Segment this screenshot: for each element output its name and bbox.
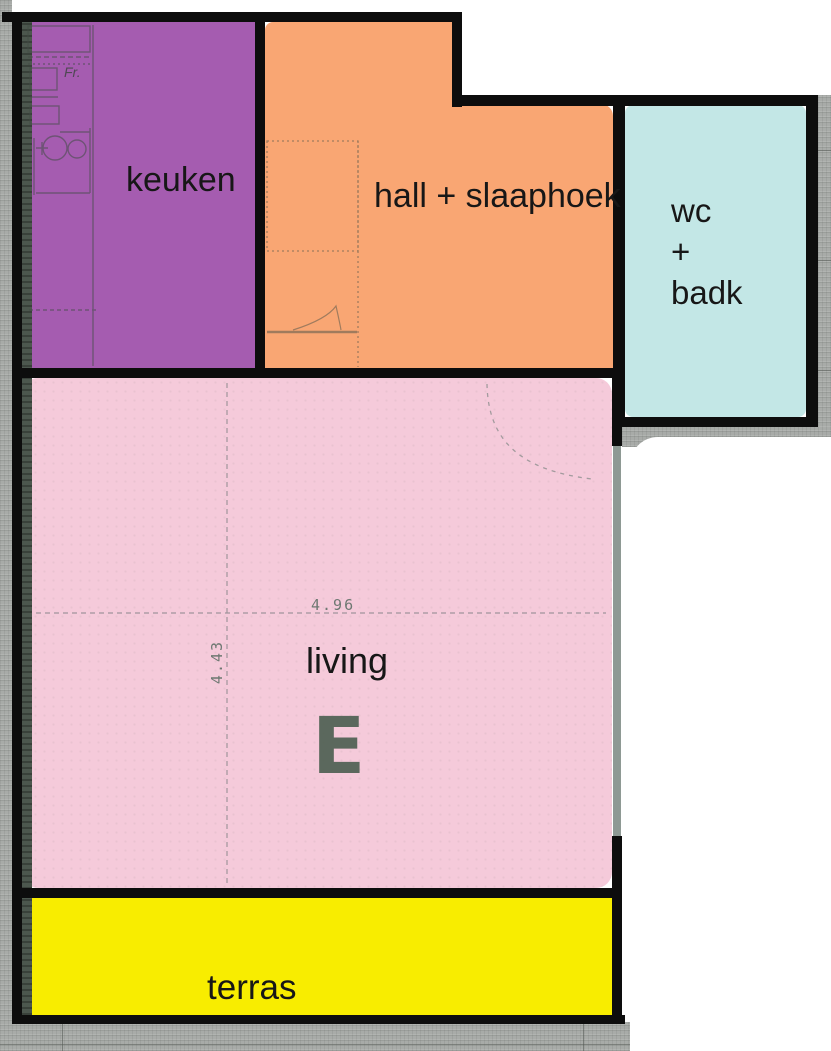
wall-crack	[818, 370, 831, 371]
exterior-strip-bottom	[0, 1022, 630, 1051]
left-wall-shadow	[22, 22, 32, 1015]
exterior-strip-left	[0, 0, 12, 1051]
pavement-seam	[583, 1022, 584, 1051]
wall-living-right-lower	[612, 836, 622, 1022]
room-hall-lower	[452, 104, 613, 368]
wall-step-vertical	[452, 12, 462, 107]
wc-badk-line-3: badk	[671, 272, 743, 313]
room-label-hall: hall + slaaphoek	[374, 178, 621, 215]
room-label-terras: terras	[207, 969, 296, 1008]
wall-crack	[818, 150, 831, 151]
pavement-seam	[62, 1022, 63, 1051]
wall-keuken-divider	[255, 22, 265, 378]
wall-terras-divider	[12, 888, 622, 898]
floor-plan: keuken hall + slaaphoek wc + badk living…	[0, 0, 831, 1051]
wall-bathroom-right	[806, 95, 818, 427]
wall-left	[12, 12, 22, 1022]
wall-living-right-upper	[612, 368, 622, 446]
room-terras	[22, 898, 612, 1015]
room-label-keuken: keuken	[126, 162, 236, 199]
exterior-strip-right	[818, 95, 831, 438]
wc-badk-line-1: wc	[671, 190, 743, 231]
fridge-note: Fr.	[64, 64, 81, 80]
wall-crack	[818, 260, 831, 261]
unit-letter-stamp: E	[312, 702, 365, 792]
pavement-seam	[0, 1044, 630, 1045]
room-label-living: living	[306, 641, 388, 681]
dimension-width-label: 4.96	[311, 596, 355, 614]
wall-top	[2, 12, 462, 22]
wall-living-right-gray	[613, 446, 621, 836]
wall-upper-right	[452, 95, 818, 106]
wall-bathroom-bottom	[613, 417, 818, 427]
wc-badk-line-2: +	[671, 231, 743, 272]
room-living	[22, 378, 612, 888]
room-label-wc-badk: wc + badk	[671, 190, 743, 313]
dimension-height-label: 4.43	[208, 640, 226, 684]
wall-middle-horizontal	[12, 368, 622, 378]
exterior-white-region	[630, 437, 831, 1051]
wall-bottom	[12, 1015, 625, 1024]
